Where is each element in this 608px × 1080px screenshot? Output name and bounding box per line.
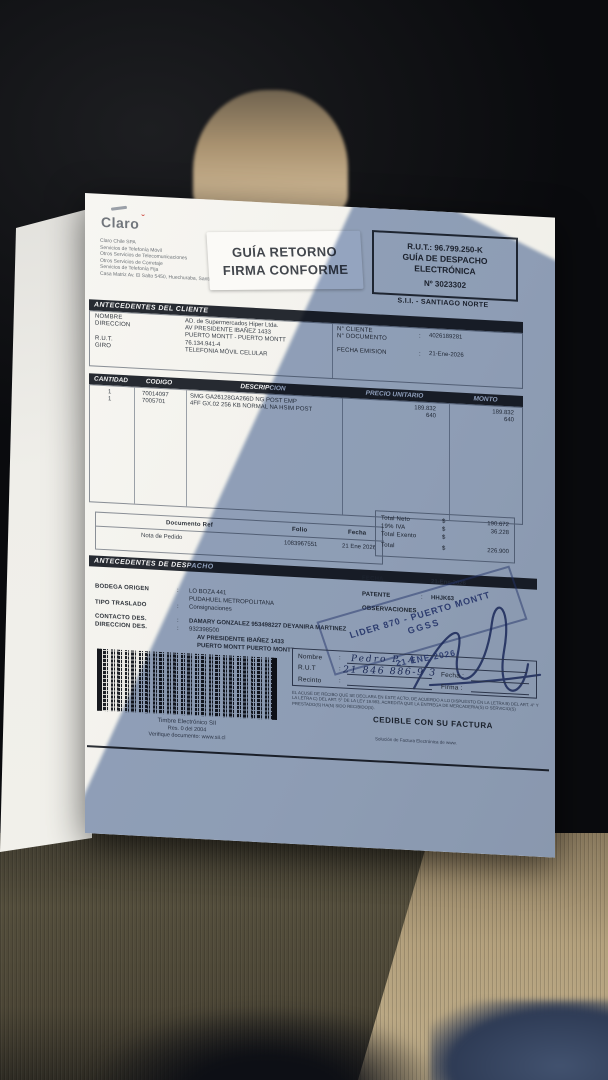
receipt-recinto-label: Recinto xyxy=(298,676,321,684)
patente-label: PATENTE xyxy=(362,592,391,599)
ref-folio-value: 1083967551 xyxy=(284,540,317,548)
claro-logo-accent: ˘ xyxy=(142,213,146,223)
fecha-despacho-label: FECHA xyxy=(362,576,384,583)
items-table-body: 1 70014097 SMG GA26128GA266D NG POST EMP… xyxy=(89,384,523,525)
cedible-label: CEDIBLE CON SU FACTURA xyxy=(373,715,493,730)
colon: : xyxy=(421,579,423,585)
colon: : xyxy=(339,666,341,672)
tipo-traslado: Consignaciones xyxy=(189,604,232,612)
colon: : xyxy=(177,626,179,632)
staple xyxy=(111,206,127,211)
receipt-firma-label: Firma : xyxy=(441,684,463,692)
ref-header-folio: Folio xyxy=(292,527,307,534)
handwritten-rut: 21 846 886-9 3 xyxy=(343,664,437,678)
item-cantidad: 1 xyxy=(108,396,111,402)
currency: $ xyxy=(442,546,446,552)
column-divider xyxy=(449,404,450,520)
firma-underline xyxy=(471,691,529,695)
colon: : xyxy=(177,604,179,610)
claro-logo: Claro˘ xyxy=(101,214,139,232)
receipt-nombre-label: Nombre xyxy=(298,653,322,661)
colon: : xyxy=(177,618,179,624)
footer-provider-note: Solución de Factura Electrónica de www. xyxy=(375,736,457,745)
colon: : xyxy=(339,678,341,684)
client-giro-label: GIRO xyxy=(95,343,111,350)
total-neto-value: 190.672 xyxy=(487,521,509,528)
receipt-fecha-label: Fecha : xyxy=(441,672,464,680)
direccion-des-label: DIRECCION DES. xyxy=(95,622,147,631)
ref-header-underline xyxy=(96,526,384,542)
rut-box: R.U.T.: 96.799.250-K GUÍA DE DESPACHO EL… xyxy=(372,230,518,302)
client-box-divider xyxy=(332,324,333,378)
colon: : xyxy=(177,588,179,594)
colon: : xyxy=(419,334,421,340)
iva-label: 19% IVA xyxy=(381,524,405,531)
item-monto: 640 xyxy=(504,417,514,424)
direccion-des-1: 932398500 xyxy=(189,626,219,634)
recinto-underline xyxy=(347,685,432,690)
exento-label: Total Exento xyxy=(381,532,416,540)
item-precio: 189.832 xyxy=(414,405,436,412)
tipo-traslado-label: TIPO TRASLADO xyxy=(95,600,147,609)
contacto-label: CONTACTO DES. xyxy=(95,614,147,623)
total-label: Total xyxy=(381,543,395,550)
doc-number: Nº 3023302 xyxy=(424,278,466,289)
currency: $ xyxy=(442,527,446,533)
ref-fecha-value: 21 Ene 2026 xyxy=(342,543,376,551)
currency: $ xyxy=(442,519,446,525)
column-divider xyxy=(186,390,187,506)
doc-type-line2: ELECTRÓNICA xyxy=(414,264,475,276)
sticker-line1: GUÍA RETORNO xyxy=(231,243,337,259)
currency: $ xyxy=(442,535,446,541)
pdf417-barcode xyxy=(97,649,277,720)
item-cantidad: 1 xyxy=(108,389,111,395)
item-precio: 640 xyxy=(426,413,436,420)
bodega-label: BODEGA ORIGEN xyxy=(95,584,149,593)
total-neto-label: Total Neto xyxy=(381,516,410,524)
item-codigo: 7005701 xyxy=(142,398,165,405)
colon: : xyxy=(339,655,341,661)
ref-header-fecha: Fecha xyxy=(348,530,366,537)
receipt-rut-label: R.U.T xyxy=(298,664,316,672)
reference-box: Documento Ref Folio Fecha Nota de Pedido… xyxy=(95,512,383,565)
total-value: 226.900 xyxy=(487,548,509,555)
item-monto: 189.832 xyxy=(492,409,514,416)
column-divider xyxy=(134,388,135,504)
car-interior-photo: Claro˘ Claro Chile SPA Servicios de Tele… xyxy=(0,0,608,1080)
iva-value: 36.228 xyxy=(491,529,509,536)
ref-header-doc: Documento Ref xyxy=(166,520,213,528)
dispatch-guide-document: Claro˘ Claro Chile SPA Servicios de Tele… xyxy=(85,193,555,858)
column-divider xyxy=(342,398,343,514)
sticker-line2: FIRMA CONFORME xyxy=(222,261,348,277)
ref-doc-value: Nota de Pedido xyxy=(141,533,182,541)
return-sticker: GUÍA RETORNO FIRMA CONFORME xyxy=(206,231,363,290)
bottom-rule xyxy=(87,745,549,771)
colon: : xyxy=(419,352,421,358)
totals-box: Total Neto $ 190.672 19% IVA $ 36.228 To… xyxy=(375,510,515,563)
client-rut-label: R.U.T. xyxy=(95,336,113,343)
seat-denim-area xyxy=(430,1000,608,1080)
bodega-1: LO BOZA 441 xyxy=(189,588,226,596)
fecha-underline xyxy=(471,680,529,684)
